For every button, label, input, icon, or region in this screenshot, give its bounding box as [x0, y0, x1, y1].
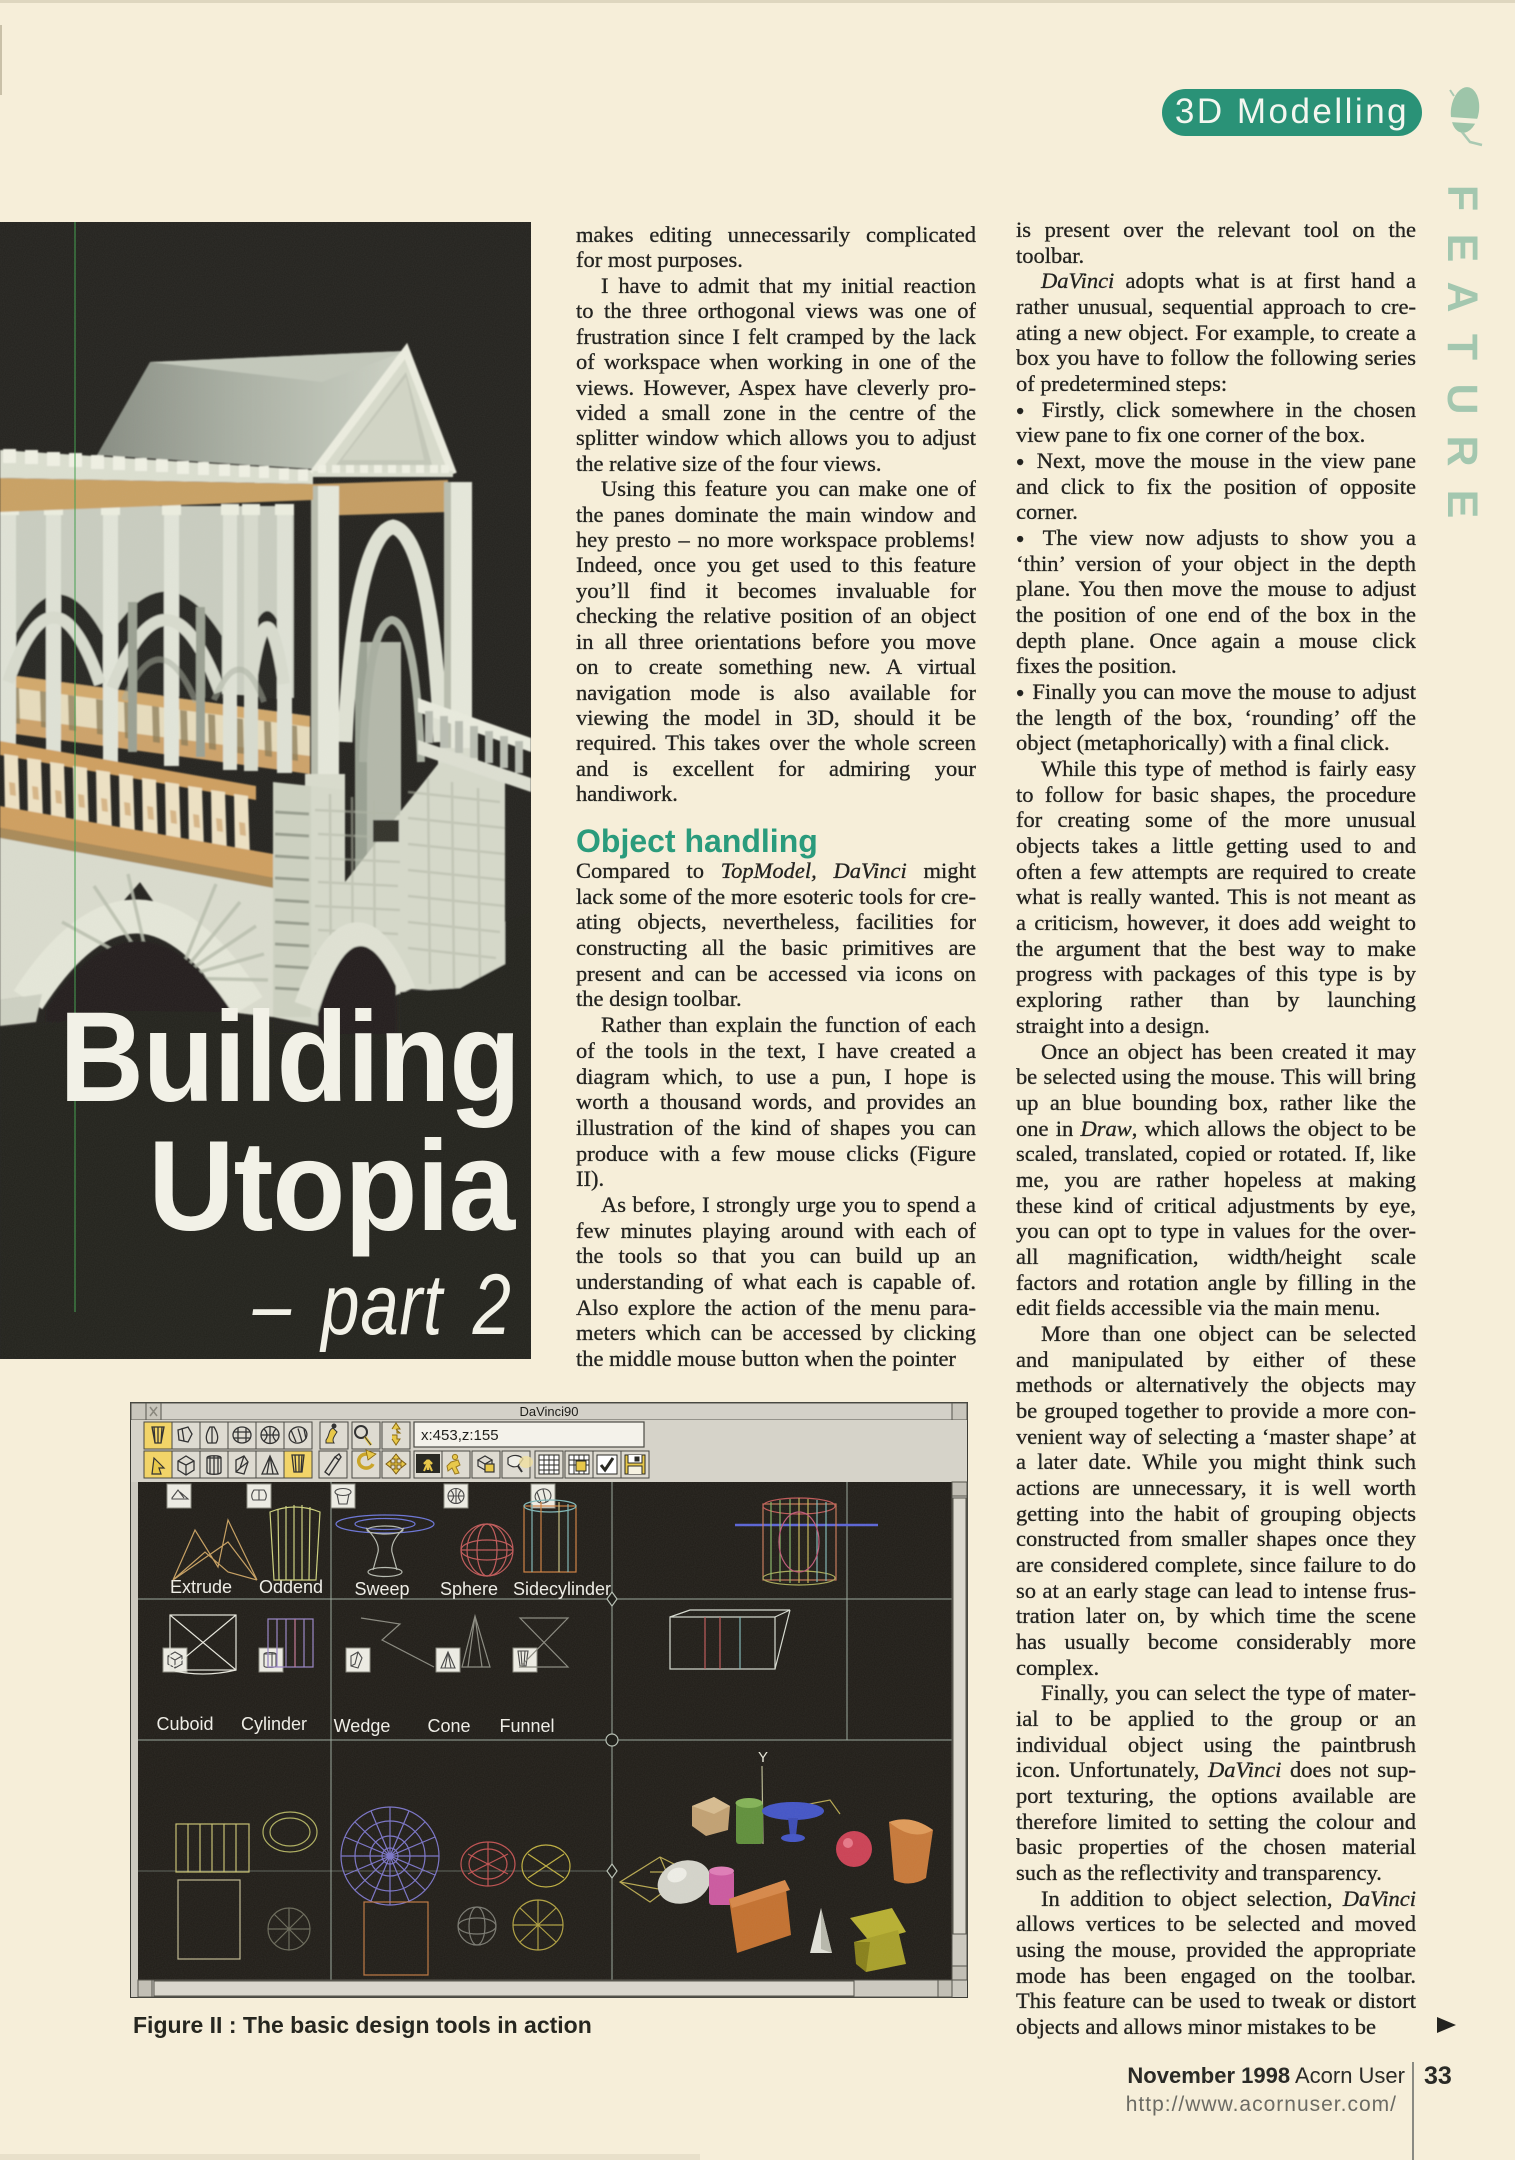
svg-text:x:453,z:155: x:453,z:155 — [421, 1427, 499, 1444]
svg-text:DaVinci90: DaVinci90 — [519, 1404, 578, 1419]
